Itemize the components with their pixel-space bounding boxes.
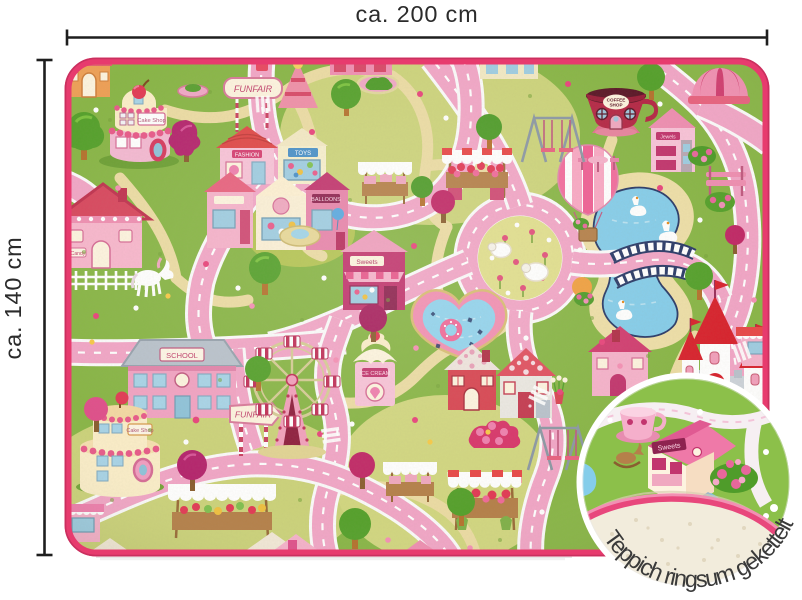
svg-text:ca. 200 cm: ca. 200 cm bbox=[356, 1, 479, 27]
svg-text:ca. 140 cm: ca. 140 cm bbox=[0, 237, 26, 360]
